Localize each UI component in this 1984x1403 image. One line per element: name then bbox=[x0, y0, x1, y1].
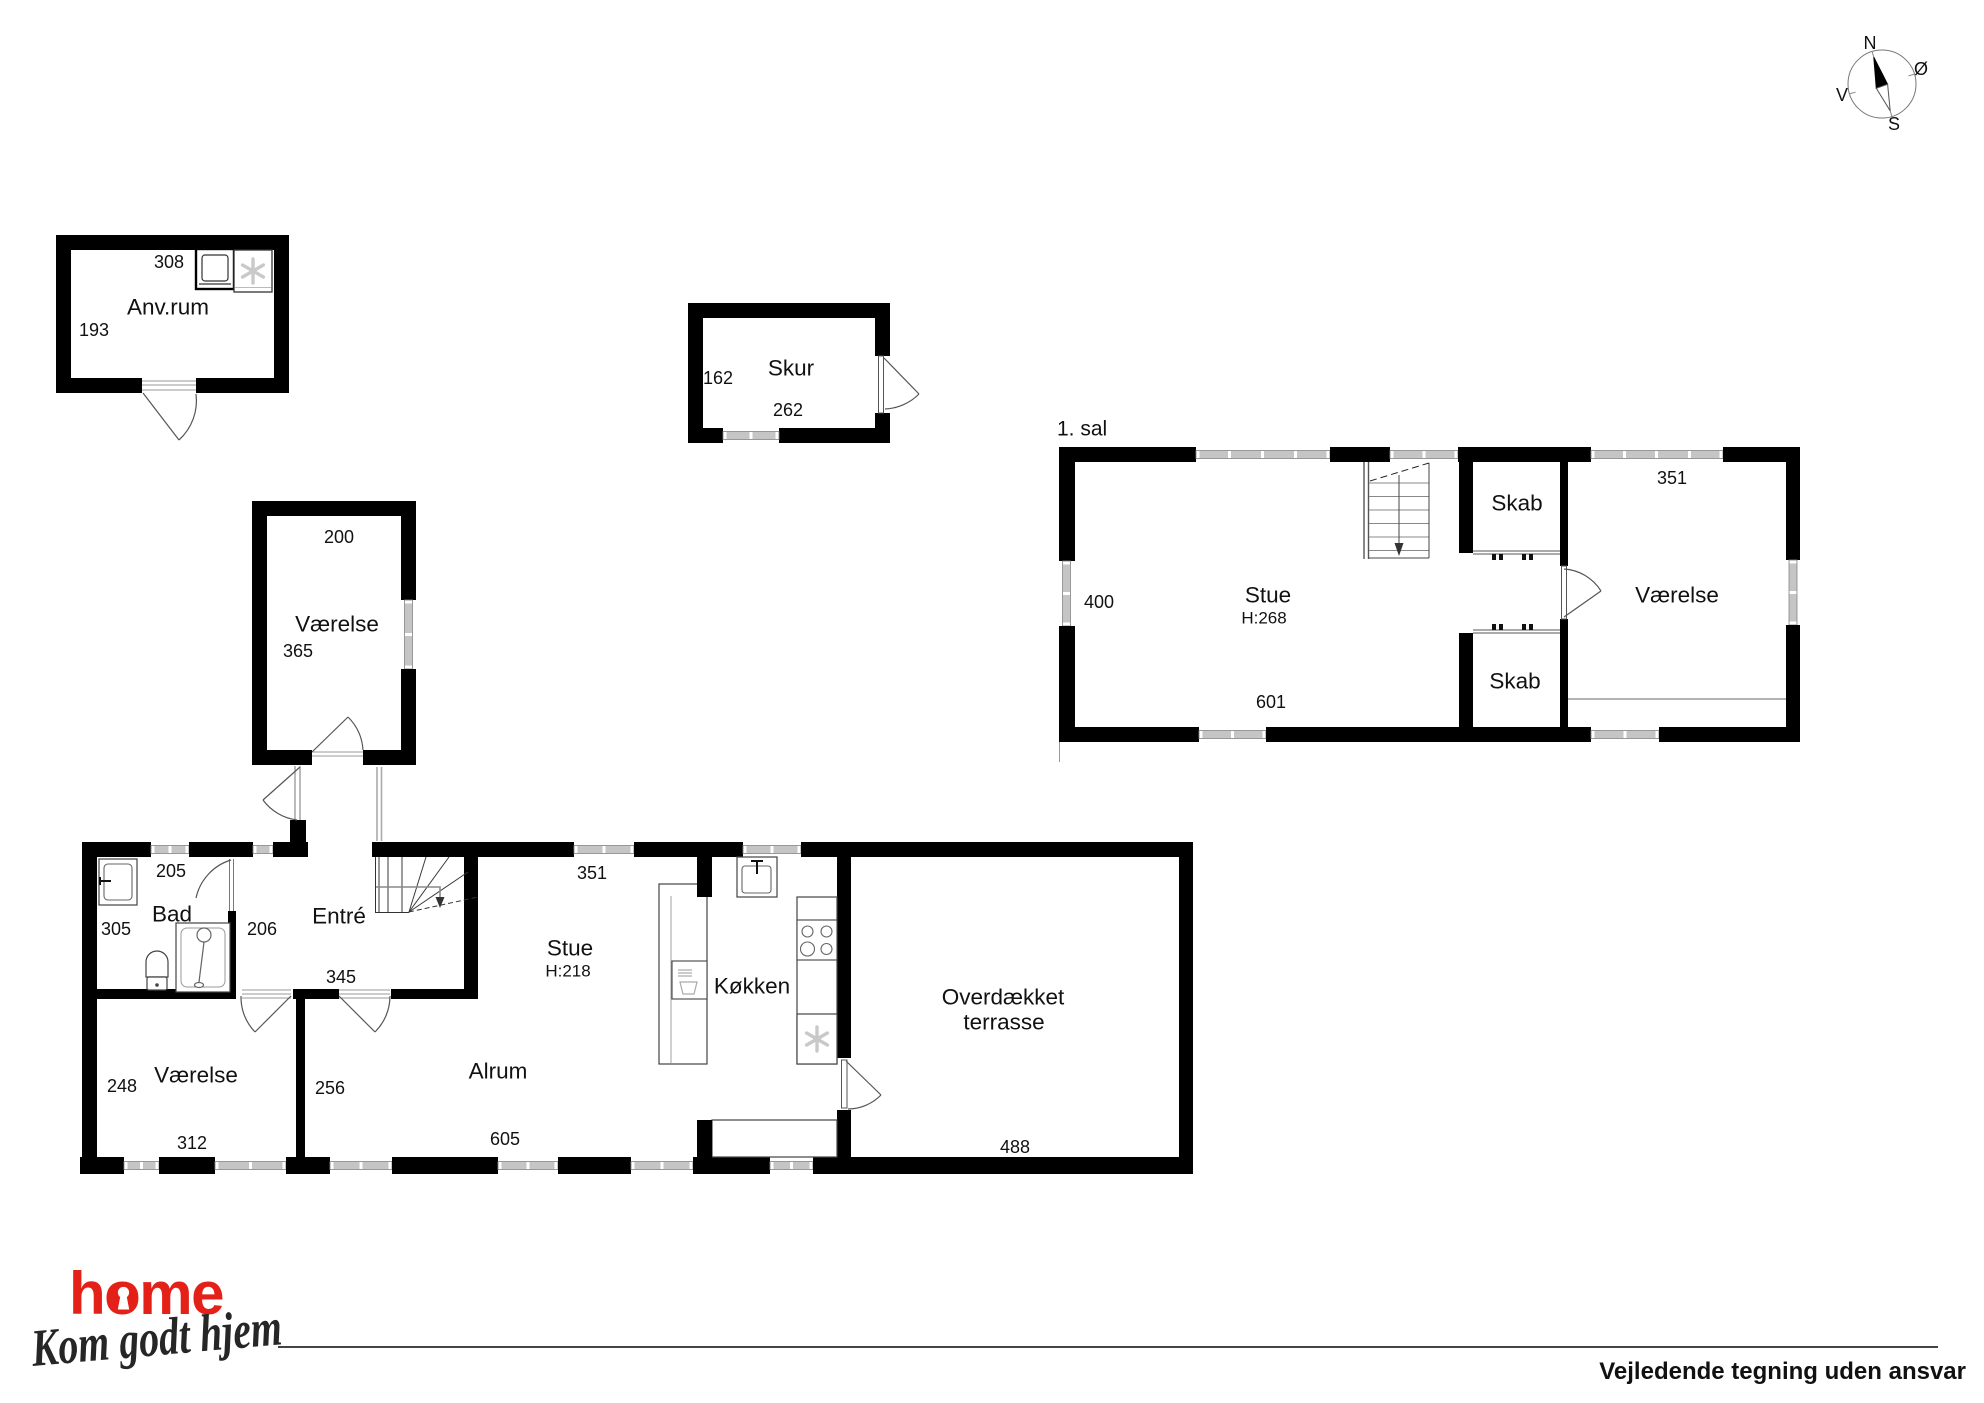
svg-text:365: 365 bbox=[283, 641, 313, 661]
svg-text:Ø: Ø bbox=[1914, 59, 1928, 79]
svg-text:351: 351 bbox=[1657, 468, 1687, 488]
svg-text:Værelse: Værelse bbox=[1635, 583, 1719, 608]
svg-text:312: 312 bbox=[177, 1133, 207, 1153]
svg-text:terrasse: terrasse bbox=[963, 1010, 1044, 1035]
svg-text:305: 305 bbox=[101, 919, 131, 939]
svg-text:Skab: Skab bbox=[1489, 669, 1540, 694]
svg-text:308: 308 bbox=[154, 252, 184, 272]
svg-text:601: 601 bbox=[1256, 692, 1286, 712]
svg-text:605: 605 bbox=[490, 1129, 520, 1149]
svg-text:Skur: Skur bbox=[768, 356, 815, 381]
svg-text:H:268: H:268 bbox=[1241, 609, 1286, 628]
svg-text:S: S bbox=[1888, 114, 1900, 134]
svg-text:Værelse: Værelse bbox=[154, 1063, 238, 1088]
svg-text:205: 205 bbox=[156, 861, 186, 881]
svg-text:248: 248 bbox=[107, 1076, 137, 1096]
svg-text:H:218: H:218 bbox=[545, 962, 590, 981]
svg-text:200: 200 bbox=[324, 527, 354, 547]
svg-text:Entré: Entré bbox=[312, 904, 366, 929]
svg-text:Bad: Bad bbox=[152, 902, 192, 927]
svg-text:N: N bbox=[1864, 33, 1877, 53]
svg-text:162: 162 bbox=[703, 368, 733, 388]
svg-text:1. sal: 1. sal bbox=[1057, 418, 1107, 441]
svg-text:488: 488 bbox=[1000, 1137, 1030, 1157]
svg-text:351: 351 bbox=[577, 863, 607, 883]
svg-text:400: 400 bbox=[1084, 592, 1114, 612]
svg-text:Stue: Stue bbox=[1245, 583, 1291, 608]
svg-text:Alrum: Alrum bbox=[469, 1059, 528, 1084]
svg-text:V: V bbox=[1836, 85, 1848, 105]
svg-text:Vejledende tegning uden ansvar: Vejledende tegning uden ansvar bbox=[1599, 1358, 1966, 1385]
svg-text:Overdækket: Overdækket bbox=[942, 985, 1065, 1010]
svg-text:345: 345 bbox=[326, 967, 356, 987]
svg-text:206: 206 bbox=[247, 919, 277, 939]
svg-text:256: 256 bbox=[315, 1078, 345, 1098]
svg-text:Stue: Stue bbox=[547, 936, 593, 961]
svg-text:193: 193 bbox=[79, 320, 109, 340]
svg-text:262: 262 bbox=[773, 400, 803, 420]
svg-text:Værelse: Værelse bbox=[295, 612, 379, 637]
svg-text:Køkken: Køkken bbox=[714, 974, 790, 999]
svg-text:Anv.rum: Anv.rum bbox=[127, 295, 209, 320]
svg-text:Skab: Skab bbox=[1491, 491, 1542, 516]
